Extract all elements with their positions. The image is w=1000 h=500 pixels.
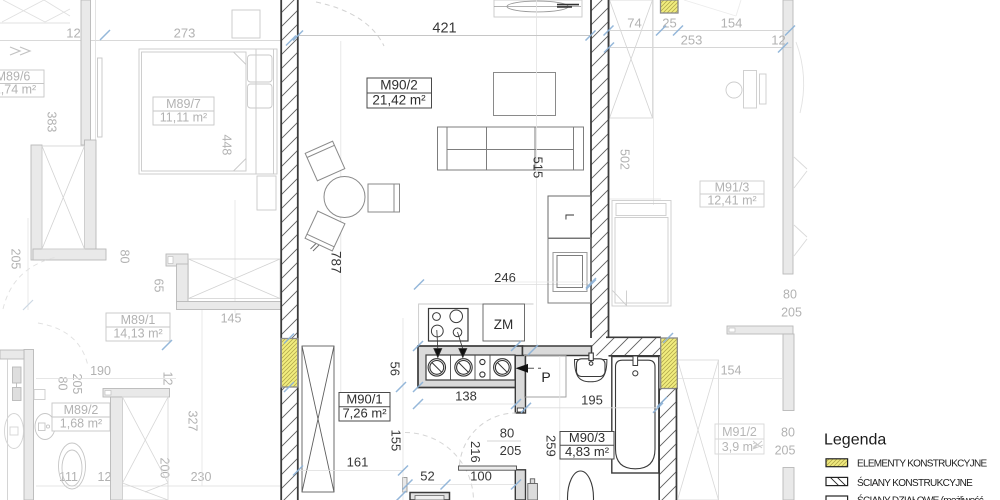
svg-text:1,74 m²: 1,74 m² — [0, 83, 36, 97]
svg-text:138: 138 — [455, 389, 477, 404]
svg-text:56: 56 — [388, 362, 403, 376]
svg-text:11,11 m²: 11,11 m² — [160, 111, 207, 125]
svg-text:502: 502 — [618, 149, 632, 170]
svg-text:205: 205 — [781, 306, 802, 320]
svg-text:246: 246 — [494, 270, 516, 285]
svg-text:205: 205 — [775, 444, 796, 458]
svg-text:205: 205 — [9, 249, 23, 270]
svg-text:21,42 m²: 21,42 m² — [372, 93, 426, 108]
svg-text:M89/1: M89/1 — [121, 313, 156, 327]
svg-text:100: 100 — [470, 469, 492, 484]
svg-text:M89/2: M89/2 — [64, 403, 99, 417]
svg-text:M89/6: M89/6 — [0, 70, 30, 84]
svg-text:383: 383 — [45, 112, 59, 133]
svg-text:154: 154 — [721, 364, 742, 378]
svg-text:80: 80 — [783, 288, 797, 302]
svg-text:M90/2: M90/2 — [380, 78, 418, 93]
svg-text:216: 216 — [468, 441, 483, 463]
svg-text:259: 259 — [544, 435, 559, 457]
svg-text:195: 195 — [581, 393, 603, 408]
svg-text:253: 253 — [681, 33, 703, 48]
svg-text:12: 12 — [98, 470, 112, 484]
svg-text:12: 12 — [66, 26, 80, 41]
svg-text:145: 145 — [221, 312, 242, 326]
svg-text:74: 74 — [627, 16, 641, 31]
svg-text:515: 515 — [531, 157, 546, 179]
svg-text:448: 448 — [220, 135, 234, 156]
svg-text:273: 273 — [174, 26, 196, 41]
svg-text:80: 80 — [781, 426, 795, 440]
svg-text:M91/2: M91/2 — [722, 425, 757, 439]
svg-text:M91/3: M91/3 — [715, 181, 750, 195]
svg-text:787: 787 — [329, 251, 344, 274]
svg-text:L: L — [563, 214, 575, 221]
svg-text:1,68 m²: 1,68 m² — [60, 417, 102, 431]
svg-text:52: 52 — [420, 469, 434, 484]
svg-text:154: 154 — [721, 16, 743, 31]
svg-text:80: 80 — [118, 250, 132, 264]
svg-text:ŚCIANY KONSTRUKCYJNE: ŚCIANY KONSTRUKCYJNE — [857, 476, 973, 489]
svg-text:3,9 m²: 3,9 m² — [722, 440, 757, 454]
svg-text:205: 205 — [500, 443, 522, 458]
svg-text:M90/1: M90/1 — [346, 392, 382, 407]
svg-text:M89/7: M89/7 — [166, 97, 201, 111]
svg-text:ZM: ZM — [494, 317, 514, 332]
svg-text:80: 80 — [500, 426, 514, 441]
svg-text:205: 205 — [70, 374, 84, 395]
svg-text:421: 421 — [432, 21, 456, 37]
svg-text:4,83 m²: 4,83 m² — [565, 444, 610, 459]
svg-text:ELEMENTY KONSTRUKCYJNE: ELEMENTY KONSTRUKCYJNE — [857, 459, 987, 470]
svg-text:P: P — [541, 369, 550, 385]
svg-text:25: 25 — [662, 16, 676, 31]
svg-text:65: 65 — [152, 279, 166, 293]
svg-text:M90/3: M90/3 — [569, 430, 605, 445]
svg-text:12: 12 — [771, 33, 785, 48]
svg-text:327: 327 — [186, 411, 200, 432]
svg-text:230: 230 — [191, 470, 212, 484]
svg-text:Legenda: Legenda — [824, 432, 886, 449]
svg-text:12,41 m²: 12,41 m² — [707, 194, 756, 208]
svg-text:155: 155 — [389, 430, 404, 452]
svg-text:7,26 m²: 7,26 m² — [342, 406, 387, 421]
svg-text:14,13 m²: 14,13 m² — [113, 327, 162, 341]
svg-text:190: 190 — [90, 364, 111, 378]
svg-text:161: 161 — [347, 455, 369, 470]
